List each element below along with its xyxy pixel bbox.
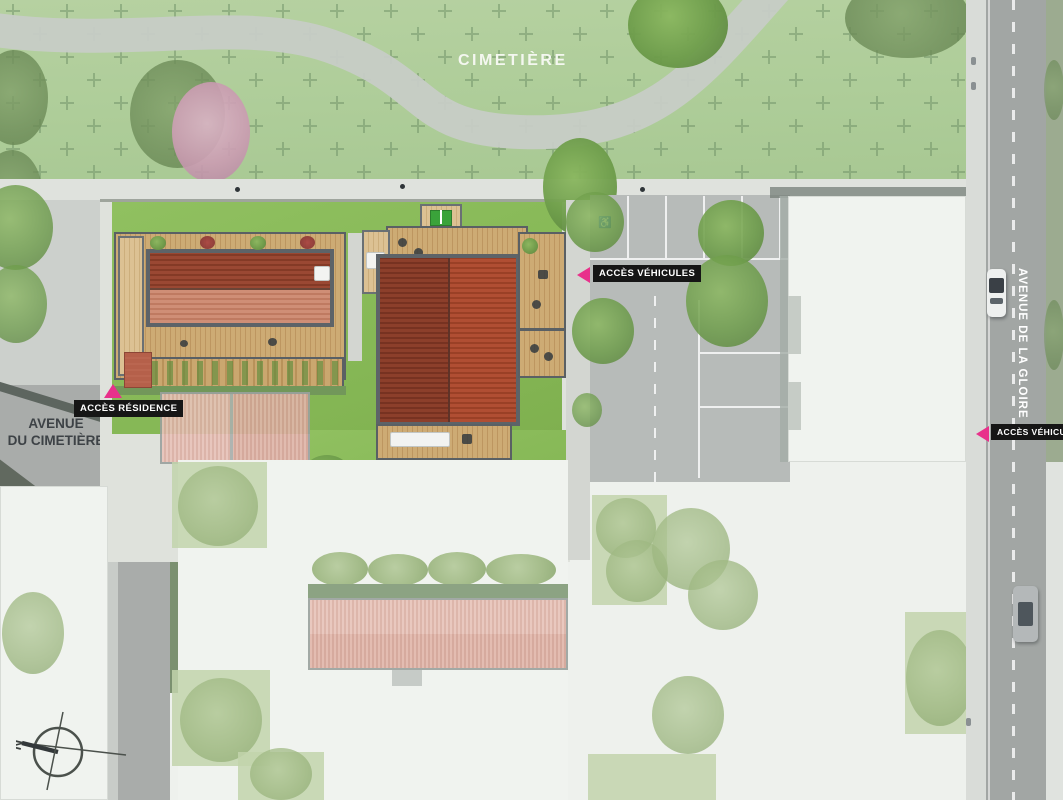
tree-icon [572,298,634,364]
tree-icon [906,630,974,726]
access-vehicles-parking-label: ACCÈS VÉHICULES [593,265,701,282]
main-building-roof-east-slope [450,258,516,422]
patio-furniture [180,340,188,347]
pedestrian-icon [971,57,976,65]
parking-line [665,196,667,258]
patio-furniture [398,238,407,247]
existing-building-roof-half [232,394,308,462]
long-table [390,432,450,447]
road-edge-line [988,0,990,800]
parking-line [700,352,788,354]
site-plan: CIMETIÈRE AVENUE DU CIMETIÈRE RUE DROUET [0,0,1063,800]
street-lamp-icon [400,184,405,189]
car-gray [1013,586,1038,642]
tree-icon [2,592,64,674]
main-building [376,254,520,426]
main-building-east-deck [518,232,566,378]
south-building-roof [308,598,568,670]
south-building-entry [392,670,422,686]
street-label-line2: DU CIMETIÈRE [0,433,112,450]
compass-rose: N [16,708,138,796]
access-arrow-icon [577,267,590,283]
compass-north-label: N [16,738,26,752]
plot-boundary-line [100,199,570,202]
west-building [146,249,334,327]
pingpong-net [440,210,442,224]
parking-line [627,196,629,258]
east-far-sidewalk [1046,462,1063,800]
tree-icon [652,676,724,754]
bush-icon [428,552,486,586]
west-building-roof-south-slope [150,289,330,323]
red-shrub-icon [300,236,315,249]
west-building-roof-north-slope [150,253,330,289]
tree-icon [178,466,258,546]
avenue-du-cimetiere-label: AVENUE DU CIMETIÈRE [0,416,112,450]
street-label-line1: AVENUE [0,416,112,433]
skylight [314,266,330,281]
cemetery-label: CIMETIÈRE [458,52,568,70]
parking-line [590,258,788,260]
east-building [788,196,966,462]
bush-icon [312,552,368,586]
bush-icon [486,554,556,586]
hedge-strip [308,584,568,598]
street-lamp-icon [640,187,645,192]
roof-ridge [230,394,233,462]
car-windshield [989,278,1004,293]
tree-icon [180,678,262,762]
car-rear-window [990,298,1003,304]
bush-icon [1044,60,1063,120]
bush-icon [368,554,428,586]
red-shrub-icon [200,236,215,249]
tree-icon [572,393,602,427]
patio-furniture [544,352,553,361]
parking-dashed-line [654,296,656,482]
patio-furniture [538,270,548,279]
garden-path [348,233,362,361]
parking-line [700,406,788,408]
driveway-path [566,200,590,560]
main-building-roof-west-slope [380,258,448,422]
community-garden-beds [148,357,344,389]
street-lamp-icon [235,187,240,192]
east-building-notch [788,382,801,430]
deck-divider [518,328,566,331]
car-roof [1018,602,1033,626]
shrub-icon [250,236,266,250]
courtyard-garden [588,754,716,800]
avenue-gloire-label: AVENUE DE LA GLOIRE [1016,268,1028,419]
access-arrow-icon [976,426,989,442]
tree-icon [250,748,312,800]
road-center-dashed-line [1012,0,1015,800]
tree-icon [688,560,758,630]
roof-ridge [448,258,450,422]
pedestrian-icon [966,718,971,726]
east-sidewalk [966,0,986,800]
patio-furniture [532,300,541,309]
pedestrian-icon [971,82,976,90]
flowering-tree-icon [172,82,250,182]
patio-furniture [268,338,277,346]
access-vehicles-avenue-label: ACCÈS VÉHICULES [991,424,1063,440]
east-building-notch [788,296,801,354]
access-residence-label: ACCÈS RÉSIDENCE [74,400,183,417]
south-building-roof-half [310,634,566,668]
access-stairs [124,352,152,388]
shrub-icon [150,236,166,250]
car-white [987,269,1006,317]
patio-furniture [530,344,539,353]
roof-ridge [150,288,330,290]
bush-icon [1044,300,1063,370]
access-arrow-icon [104,384,122,398]
patio-furniture [462,434,472,444]
tree-icon [566,192,624,252]
potted-plant-icon [522,238,538,254]
